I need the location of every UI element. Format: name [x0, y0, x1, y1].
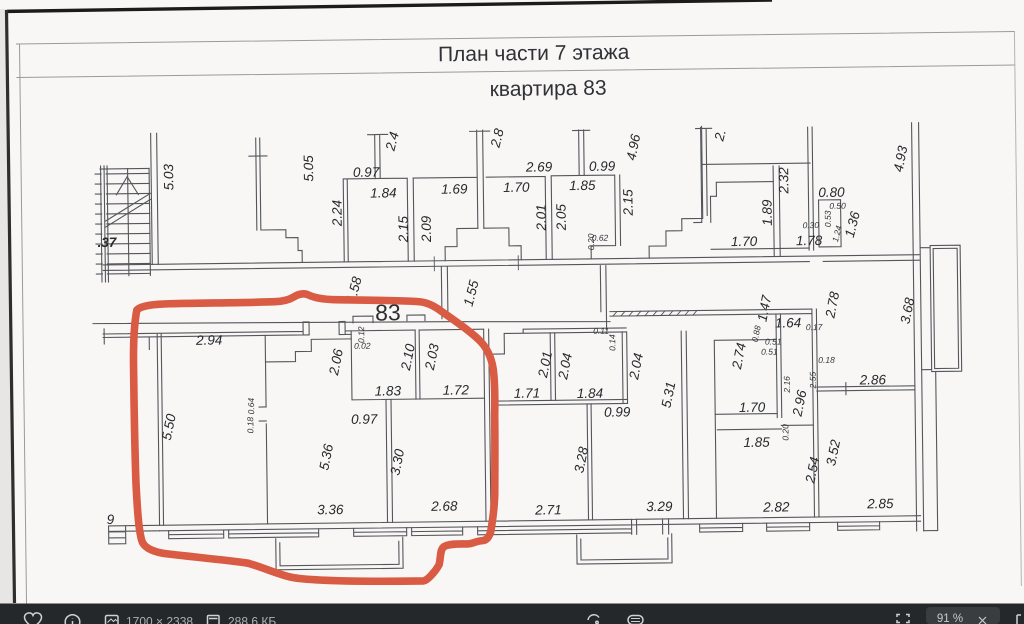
svg-text:5.03: 5.03 [161, 163, 176, 190]
svg-text:3.36: 3.36 [317, 502, 344, 517]
svg-text:91 %: 91 % [937, 613, 963, 624]
svg-text:2.15: 2.15 [620, 189, 635, 217]
svg-text:1.70: 1.70 [731, 234, 758, 249]
svg-text:1.70: 1.70 [503, 180, 530, 195]
svg-text:2.94: 2.94 [195, 332, 222, 347]
svg-text:2.01: 2.01 [534, 204, 549, 231]
svg-text:0.18: 0.18 [818, 355, 835, 365]
svg-text:0.97: 0.97 [353, 164, 380, 179]
svg-text:1.64: 1.64 [775, 315, 801, 330]
svg-text:1.83: 1.83 [375, 383, 402, 398]
svg-text:1.84: 1.84 [577, 386, 603, 401]
svg-text:0.99: 0.99 [604, 404, 631, 419]
svg-text:0.20: 0.20 [780, 424, 790, 441]
svg-text:0.99: 0.99 [589, 159, 616, 174]
svg-text:9: 9 [107, 512, 115, 527]
svg-text:2.86: 2.86 [859, 372, 887, 387]
svg-text:2.85: 2.85 [866, 496, 894, 511]
svg-text:1.70: 1.70 [739, 400, 766, 415]
svg-text:План части 7 этажа: План части 7 этажа [438, 41, 630, 66]
svg-text:2.24: 2.24 [329, 200, 344, 227]
svg-text:1.89: 1.89 [760, 199, 775, 226]
svg-text:0.14: 0.14 [607, 334, 617, 351]
svg-text:0.97: 0.97 [351, 412, 378, 427]
svg-text:1.85: 1.85 [569, 178, 596, 193]
svg-text:2.68: 2.68 [430, 499, 458, 514]
svg-text:2.55: 2.55 [808, 371, 818, 389]
svg-text:1.71: 1.71 [514, 386, 540, 401]
svg-text:1.84: 1.84 [370, 185, 396, 200]
svg-text:0.62: 0.62 [592, 233, 609, 243]
svg-text:1700 × 2338: 1700 × 2338 [126, 615, 193, 624]
svg-text:2.15: 2.15 [396, 215, 411, 243]
svg-text:0.51: 0.51 [765, 336, 782, 346]
svg-text:0.51: 0.51 [761, 347, 778, 357]
svg-text:2.05: 2.05 [554, 204, 569, 232]
svg-text:2.09: 2.09 [419, 215, 434, 243]
svg-text:0.80: 0.80 [818, 185, 845, 200]
svg-text:0.17: 0.17 [806, 322, 823, 332]
svg-text:2.16: 2.16 [782, 376, 792, 394]
svg-text:0.50: 0.50 [829, 201, 846, 211]
svg-text:0.18: 0.18 [245, 417, 255, 434]
svg-text:1.69: 1.69 [441, 181, 468, 196]
svg-text:0.02: 0.02 [354, 341, 371, 351]
svg-text:3.29: 3.29 [646, 499, 673, 514]
svg-text:0.64: 0.64 [246, 398, 256, 415]
svg-text:2.69: 2.69 [525, 159, 553, 174]
svg-text:1.85: 1.85 [743, 435, 770, 450]
svg-text:2.32: 2.32 [776, 167, 791, 195]
svg-text:2.82: 2.82 [762, 499, 790, 514]
svg-text:5.05: 5.05 [301, 155, 316, 182]
svg-text:2.71: 2.71 [534, 502, 561, 517]
svg-text:1.78: 1.78 [796, 233, 823, 248]
svg-text:квартира 83: квартира 83 [490, 77, 607, 101]
svg-text:0.30: 0.30 [802, 220, 819, 230]
svg-text:0.11: 0.11 [593, 326, 609, 336]
svg-text:288.6 КБ: 288.6 КБ [228, 615, 276, 624]
svg-text:0.53: 0.53 [823, 210, 833, 227]
svg-text:.37: .37 [98, 235, 118, 250]
svg-text:1.72: 1.72 [443, 382, 470, 397]
